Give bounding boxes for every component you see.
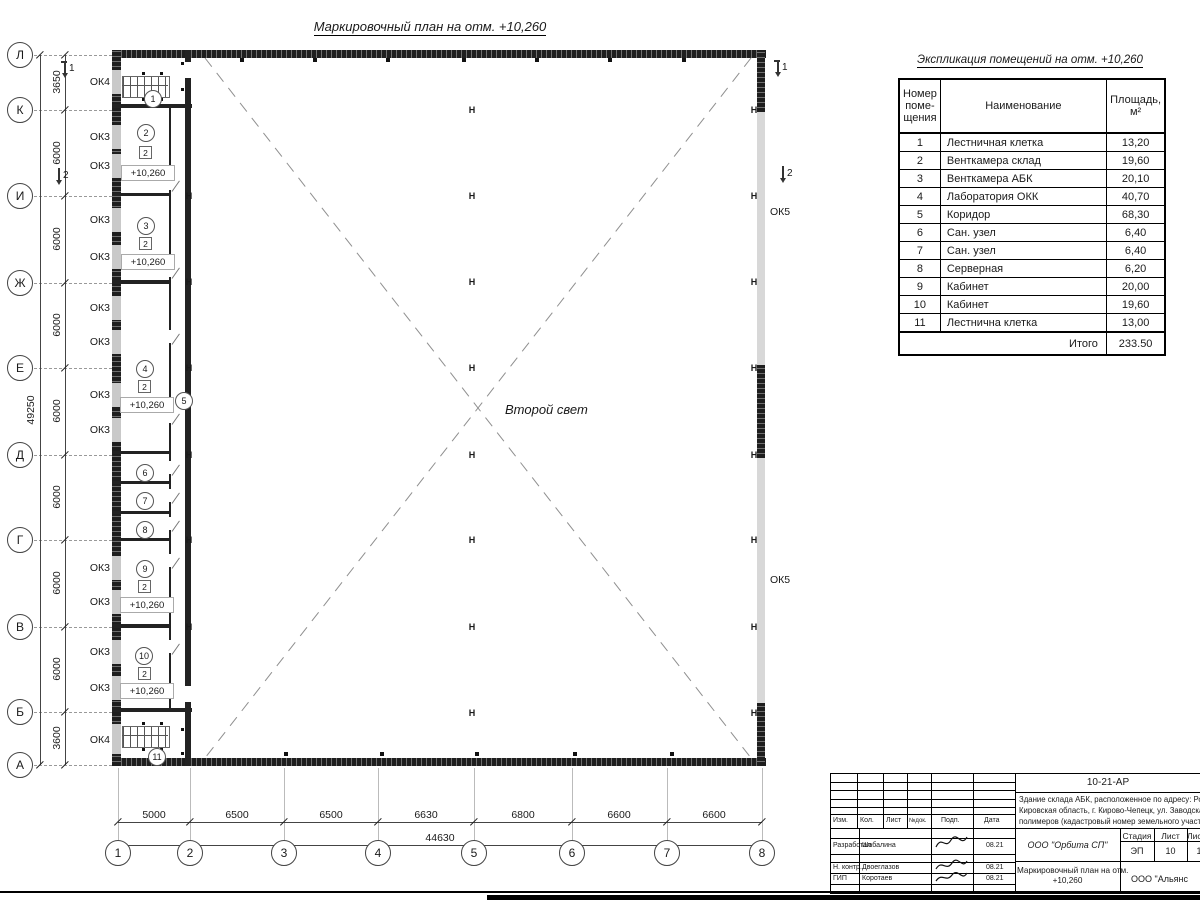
- axis-label: Г: [17, 533, 24, 547]
- window-mark: ОК3: [70, 646, 110, 658]
- room-num: 5: [899, 206, 940, 224]
- column-symbol: Н: [751, 535, 758, 545]
- axis-label: В: [16, 620, 24, 634]
- design-org: ООО "Орбита СП": [1017, 840, 1118, 850]
- grid-line: [1015, 861, 1200, 862]
- axis-label: А: [16, 758, 24, 772]
- col-ndok: №док.: [909, 818, 927, 824]
- axis-label: К: [17, 103, 24, 117]
- total-value: 233.50: [1106, 332, 1165, 355]
- dim-value: 6000: [51, 227, 63, 250]
- window-opening: [112, 640, 121, 664]
- table-row: 1Лестничная клетка13,20: [899, 133, 1165, 152]
- grid-line: [931, 774, 932, 893]
- level-mark: +10,260: [121, 254, 175, 270]
- dim-value: 6000: [51, 571, 63, 594]
- dim-value: 6600: [702, 809, 725, 821]
- dim-value: 5000: [142, 809, 165, 821]
- room-num: 8: [899, 260, 940, 278]
- column-symbol: Н: [186, 191, 193, 201]
- column-symbol: Н: [186, 277, 193, 287]
- partition-wall: [112, 511, 170, 514]
- room-num: 2: [899, 152, 940, 170]
- room-number-label: 3: [143, 221, 148, 231]
- column-dot: [181, 728, 184, 731]
- room-num: 9: [899, 278, 940, 296]
- room-number: 10: [135, 647, 153, 665]
- level-mark-label: +10,260: [130, 600, 165, 611]
- room-area: 19,60: [1106, 296, 1165, 314]
- room-area: 20,00: [1106, 278, 1165, 296]
- grid-line: [831, 799, 1015, 800]
- grid-line: [857, 774, 858, 828]
- axis-label: 6: [569, 846, 576, 860]
- axis-line: [34, 455, 112, 456]
- room-area: 20,10: [1106, 170, 1165, 188]
- table-row: 5Коридор68,30: [899, 206, 1165, 224]
- address-line: Кировская область, г. Кирово-Чепецк, ул.…: [1019, 806, 1200, 815]
- window-mark: ОК3: [70, 302, 110, 314]
- column-symbol: Н: [186, 535, 193, 545]
- axis-bubble: Л: [7, 42, 33, 68]
- grid-line: [831, 807, 1015, 808]
- section-label: 1: [782, 62, 788, 73]
- window-mark: ОК3: [70, 389, 110, 401]
- window-mark: ОК4: [70, 76, 110, 88]
- section-mark: [775, 72, 781, 77]
- signature: [933, 834, 969, 852]
- axis-label: Л: [16, 48, 24, 62]
- room-num: 7: [899, 242, 940, 260]
- axis-label: 5: [471, 846, 478, 860]
- table-row: 4Лаборатория ОКК40,70: [899, 188, 1165, 206]
- drawing-title-line: +10,260: [1017, 876, 1118, 885]
- signature: [933, 871, 969, 885]
- section-mark: [777, 60, 779, 72]
- col-kol: Кол.: [860, 817, 874, 824]
- level-mark: +10,260: [120, 397, 174, 413]
- axis-line: [34, 55, 112, 56]
- axis-label: 1: [115, 846, 122, 860]
- room-number-label: 10: [139, 651, 149, 661]
- plan-title: Маркировочный план на отм. +10,260: [230, 18, 630, 36]
- door-opening: [168, 517, 172, 530]
- room-number-label: 7: [142, 496, 147, 506]
- column-symbol: Н: [186, 450, 193, 460]
- table-row: 8Серверная6,20: [899, 260, 1165, 278]
- column-symbol: Н: [469, 622, 476, 632]
- type-mark: 2: [138, 667, 151, 680]
- level-mark: +10,260: [121, 165, 175, 181]
- section-mark: [780, 178, 786, 183]
- table-row: 11Лестнична клетка13,00: [899, 314, 1165, 333]
- window-mark: ОК3: [70, 424, 110, 436]
- window-mark: ОК3: [70, 131, 110, 143]
- section-mark: [64, 61, 66, 73]
- type-mark-label: 2: [143, 239, 148, 249]
- table-row: 10Кабинет19,60: [899, 296, 1165, 314]
- room-area: 13,20: [1106, 133, 1165, 152]
- axis-label: 7: [664, 846, 671, 860]
- axis-line: [34, 627, 112, 628]
- partition-wall: [112, 708, 192, 712]
- door-leaf: [172, 644, 180, 655]
- window-opening: [112, 125, 121, 149]
- axis-bubble: Е: [7, 355, 33, 381]
- room-area: 13,00: [1106, 314, 1165, 333]
- door-leaf: [172, 181, 180, 192]
- room-name: Лаборатория ОКК: [940, 188, 1106, 206]
- door-opening: [168, 330, 172, 343]
- axis-line: [34, 712, 112, 713]
- room-number-label: 8: [142, 525, 147, 535]
- window-mark: ОК3: [70, 336, 110, 348]
- room-num: 4: [899, 188, 940, 206]
- level-mark-label: +10,260: [131, 168, 166, 179]
- extension-line: [572, 768, 573, 850]
- room-area: 6,40: [1106, 242, 1165, 260]
- column-dot: [142, 722, 145, 725]
- column-symbol: Н: [186, 363, 193, 373]
- sheet-label: Лист: [1154, 831, 1187, 841]
- stair-rail: [122, 85, 168, 86]
- column-symbol: Н: [469, 450, 476, 460]
- column-dot: [160, 72, 163, 75]
- dim-value: 3600: [51, 726, 63, 749]
- level-mark: +10,260: [120, 597, 174, 613]
- sig-name: Шабалина: [862, 842, 896, 849]
- sheet-value: 10: [1154, 846, 1187, 856]
- room-number: 5: [175, 392, 193, 410]
- room-area: 6,40: [1106, 224, 1165, 242]
- room-num: 3: [899, 170, 940, 188]
- axis-label: 8: [759, 846, 766, 860]
- column-symbol: Н: [751, 105, 758, 115]
- axis-label: Д: [16, 448, 24, 462]
- room-name: Лестнична клетка: [940, 314, 1106, 333]
- room-name: Венткамера АБК: [940, 170, 1106, 188]
- table-row: 9Кабинет20,00: [899, 278, 1165, 296]
- door-opening: [168, 489, 172, 502]
- extension-line: [284, 768, 285, 850]
- schedule-title-text: Экспликация помещений на отм. +10,260: [917, 54, 1143, 68]
- column-symbol: Н: [469, 363, 476, 373]
- column-symbol: Н: [751, 191, 758, 201]
- room-number: 7: [136, 492, 154, 510]
- partition-wall: [112, 451, 170, 454]
- void-cross-lines: [191, 50, 757, 766]
- partition-wall: [112, 624, 170, 628]
- room-area: 40,70: [1106, 188, 1165, 206]
- table-row: 7Сан. узел6,40: [899, 242, 1165, 260]
- table-header-row: Номер поме- щения Наименование Площадь, …: [899, 79, 1165, 133]
- room-number: 2: [137, 124, 155, 142]
- col-header-number: Номер поме- щения: [899, 79, 940, 133]
- room-name: Коридор: [940, 206, 1106, 224]
- col-data: Дата: [984, 817, 1000, 824]
- sig-role: Н. контр.: [833, 864, 862, 871]
- axis-bubble: Ж: [7, 270, 33, 296]
- level-mark: +10,260: [120, 683, 174, 699]
- window-opening: [112, 330, 121, 354]
- column-symbol: Н: [469, 277, 476, 287]
- section-label: 2: [787, 168, 793, 179]
- dim-value: 6800: [511, 809, 534, 821]
- door-opening: [168, 461, 172, 474]
- extension-line: [378, 768, 379, 850]
- column-symbol: Н: [469, 191, 476, 201]
- door-opening: [168, 640, 172, 653]
- axis-bubble: 1: [105, 840, 131, 866]
- window-mark: ОК3: [70, 596, 110, 608]
- door-leaf: [172, 465, 180, 476]
- column-dot: [142, 72, 145, 75]
- column-symbol: Н: [751, 450, 758, 460]
- column-dot: [181, 752, 184, 755]
- window-mark: ОК3: [70, 214, 110, 226]
- axis-bubble: Г: [7, 527, 33, 553]
- dim-value: 6000: [51, 485, 63, 508]
- room-number: 3: [137, 217, 155, 235]
- dim-value: 6000: [51, 399, 63, 422]
- grid-line: [1120, 841, 1200, 842]
- column-symbol: Н: [751, 708, 758, 718]
- axis-line: [34, 196, 112, 197]
- grid-line: [831, 814, 1015, 815]
- extension-line: [474, 768, 475, 850]
- axis-bubble: Б: [7, 699, 33, 725]
- axis-bubble: 7: [654, 840, 680, 866]
- col-podp: Подп.: [941, 817, 960, 824]
- room-number-label: 2: [143, 128, 148, 138]
- dim-value: 6500: [319, 809, 342, 821]
- column-dot: [142, 748, 145, 751]
- room-num: 1: [899, 133, 940, 152]
- axis-bubble: 4: [365, 840, 391, 866]
- window-opening: [112, 154, 121, 178]
- room-name: Кабинет: [940, 296, 1106, 314]
- table-row: 6Сан. узел6,40: [899, 224, 1165, 242]
- dim-value: 6000: [51, 141, 63, 164]
- dim-value: 6600: [607, 809, 630, 821]
- axis-line: [34, 368, 112, 369]
- stair-flight: [122, 726, 170, 748]
- column-symbol: Н: [186, 622, 193, 632]
- column-symbol: Н: [469, 105, 476, 115]
- column-symbol: Н: [469, 535, 476, 545]
- room-number: 1: [144, 90, 162, 108]
- sig-name: Коротаев: [862, 875, 892, 882]
- table-total-row: Итого 233.50: [899, 332, 1165, 355]
- window-opening: [112, 724, 121, 754]
- room-name: Кабинет: [940, 278, 1106, 296]
- column-dot: [181, 88, 184, 91]
- dim-total: 44630: [425, 832, 454, 844]
- axis-bubble: Д: [7, 442, 33, 468]
- schedule-title: Экспликация помещений на отм. +10,260: [880, 50, 1180, 68]
- level-mark-label: +10,260: [130, 686, 165, 697]
- window-opening: [112, 70, 121, 94]
- column-symbol: Н: [751, 277, 758, 287]
- axis-bubble: К: [7, 97, 33, 123]
- section-label: 1: [69, 63, 75, 74]
- window-mark: ОК3: [70, 562, 110, 574]
- table-row: 3Венткамера АБК20,10: [899, 170, 1165, 188]
- type-mark: 2: [138, 580, 151, 593]
- type-mark-label: 2: [143, 148, 148, 158]
- title-block: Изм. Кол. Лист №док. Подп. Дата Разработ…: [830, 773, 1200, 894]
- column-dot: [160, 722, 163, 725]
- door-leaf: [172, 334, 180, 345]
- door-opening: [168, 554, 172, 567]
- sheets-label: Листов: [1187, 831, 1200, 841]
- room-name: Сан. узел: [940, 224, 1106, 242]
- level-mark-label: +10,260: [131, 257, 166, 268]
- extension-line: [190, 768, 191, 850]
- dimension-line: [40, 55, 41, 765]
- room-number-label: 1: [150, 94, 155, 104]
- section-label: 2: [63, 170, 69, 181]
- axis-bubble: А: [7, 752, 33, 778]
- room-schedule-table: Номер поме- щения Наименование Площадь, …: [898, 78, 1166, 356]
- section-mark: [62, 73, 68, 78]
- grid-line: [859, 828, 860, 893]
- window-opening: [112, 418, 121, 442]
- address-line: полимеров (кадастровый номер земельного …: [1019, 817, 1200, 826]
- window-opening: [112, 556, 121, 580]
- window-mark: ОК5: [770, 574, 810, 586]
- room-number-label: 11: [152, 752, 161, 762]
- window-mark: ОК3: [70, 251, 110, 263]
- exterior-wall: [757, 365, 765, 458]
- extension-line: [762, 768, 763, 850]
- window-mark: ОК5: [770, 206, 810, 218]
- room-number-label: 5: [181, 396, 186, 406]
- room-number-label: 4: [142, 364, 147, 374]
- sig-date: 08.21: [986, 864, 1004, 871]
- room-number: 4: [136, 360, 154, 378]
- axis-bubble: 5: [461, 840, 487, 866]
- room-number-label: 6: [142, 468, 147, 478]
- grid-line: [883, 774, 884, 828]
- dim-value: 6500: [225, 809, 248, 821]
- room-name: Серверная: [940, 260, 1106, 278]
- level-mark-label: +10,260: [130, 400, 165, 411]
- sheet-frame-line: [0, 891, 1200, 893]
- door-leaf: [172, 414, 180, 425]
- drawing-sheet: Маркировочный план на отм. +10,260 Л К И…: [0, 0, 1200, 900]
- room-number: 9: [136, 560, 154, 578]
- column-symbol: Н: [751, 363, 758, 373]
- axis-line: [34, 110, 112, 111]
- type-mark: 2: [138, 380, 151, 393]
- axis-label: 2: [187, 846, 194, 860]
- extension-line: [118, 768, 119, 850]
- axis-line: [34, 283, 112, 284]
- room-name: Лестничная клетка: [940, 133, 1106, 152]
- grid-line: [831, 782, 1015, 783]
- axis-label: И: [16, 189, 25, 203]
- grid-line: [973, 774, 974, 893]
- col-header-name: Наименование: [940, 79, 1106, 133]
- doc-number: 10-21-АР: [1021, 777, 1195, 788]
- window-mark: ОК4: [70, 734, 110, 746]
- room-number-label: 9: [142, 564, 147, 574]
- section-mark: [782, 166, 784, 178]
- partition-wall: [112, 193, 170, 196]
- sig-name: Двоеглазов: [862, 864, 899, 871]
- axis-bubble: 6: [559, 840, 585, 866]
- dim-value: 6630: [414, 809, 437, 821]
- axis-label: Е: [16, 361, 24, 375]
- room-name: Венткамера склад: [940, 152, 1106, 170]
- axis-bubble: И: [7, 183, 33, 209]
- second-light-label: Второй свет: [505, 402, 588, 417]
- door-leaf: [172, 521, 180, 532]
- grid-line: [831, 790, 1015, 791]
- column-symbol: Н: [469, 708, 476, 718]
- exterior-wall: [757, 50, 765, 112]
- partition-wall: [112, 280, 170, 284]
- dim-value: 6000: [51, 657, 63, 680]
- axis-label: 3: [281, 846, 288, 860]
- sheets-value: 1: [1187, 846, 1200, 856]
- stair-rail: [122, 735, 168, 736]
- dimension-line: [65, 55, 66, 765]
- door-leaf: [172, 558, 180, 569]
- column-dot: [181, 62, 184, 65]
- room-number: 8: [136, 521, 154, 539]
- axis-bubble: В: [7, 614, 33, 640]
- sheet-frame-edge: [487, 895, 1200, 900]
- extension-line: [667, 768, 668, 850]
- sig-role: ГИП: [833, 875, 847, 882]
- window-opening: [112, 296, 121, 320]
- room-num: 6: [899, 224, 940, 242]
- sig-date: 08.21: [986, 875, 1004, 882]
- room-number: 11: [148, 748, 166, 766]
- type-mark-label: 2: [142, 582, 147, 592]
- stage-label: Стадия: [1120, 831, 1154, 841]
- axis-label: Б: [16, 705, 24, 719]
- section-mark: [56, 180, 62, 185]
- sig-date: 08.21: [986, 842, 1004, 849]
- room-area: 6,20: [1106, 260, 1165, 278]
- room-area: 68,30: [1106, 206, 1165, 224]
- col-header-area: Площадь, м²: [1106, 79, 1165, 133]
- room-area: 19,60: [1106, 152, 1165, 170]
- address-line: Здание склада АБК, расположенное по адре…: [1019, 795, 1200, 804]
- col-izm: Изм.: [833, 817, 848, 824]
- company-name: ООО "Альянс: [1131, 874, 1188, 884]
- axis-label: Ж: [14, 276, 25, 290]
- window-opening: [112, 245, 121, 269]
- drawing-title-line: Маркировочный план на отм.: [1017, 866, 1118, 875]
- type-mark: 2: [139, 146, 152, 159]
- column-symbol: Н: [751, 622, 758, 632]
- axis-bubble: 3: [271, 840, 297, 866]
- window-opening: [112, 208, 121, 232]
- room-num: 11: [899, 314, 940, 333]
- grid-line: [1015, 792, 1200, 793]
- exterior-wall: [757, 703, 765, 766]
- window-mark: ОК3: [70, 682, 110, 694]
- room-name: Сан. узел: [940, 242, 1106, 260]
- axis-line: [34, 765, 112, 766]
- dim-total: 49250: [25, 395, 37, 424]
- grid-line: [907, 774, 908, 828]
- plan-title-text: Маркировочный план на отм. +10,260: [314, 19, 547, 36]
